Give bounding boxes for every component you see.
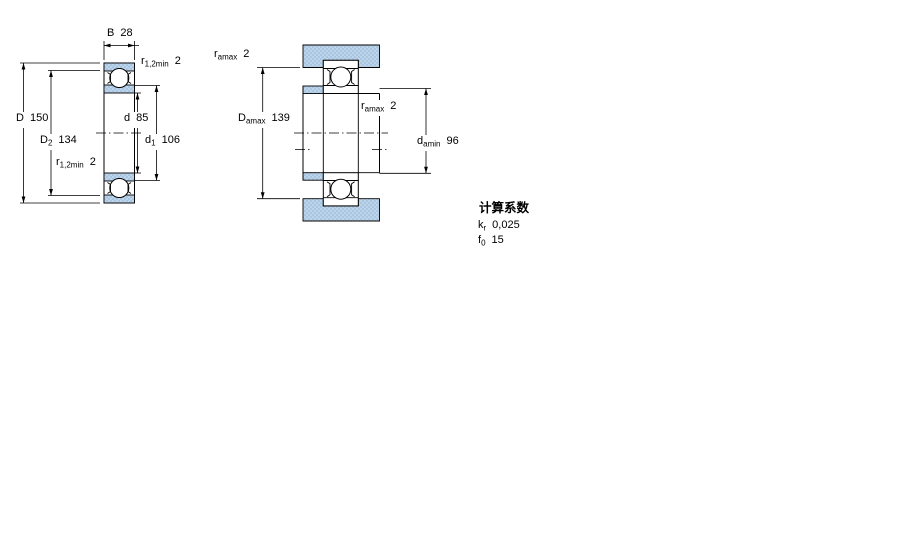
factor-subscript: 0 [481,239,485,248]
dim-subscript: 2 [48,139,52,148]
dim-label-ramax-top: ramax2 [214,48,249,64]
arrow [22,63,26,70]
arrow [261,68,265,75]
dim-subscript: 1,2min [145,60,169,69]
dim-label-B: B28 [107,27,133,43]
dim-value: 2 [90,156,96,168]
arrow [155,174,159,181]
dim-symbol: D [16,112,24,124]
calculation-factors-title: 计算系数 [479,197,529,216]
arrow [22,197,26,204]
ball-bottom [110,179,129,198]
arrow [424,89,428,96]
arrow [49,189,53,196]
dim-subscript: amax [246,117,266,126]
shaft-shoulder-top [303,86,323,94]
arrow [155,86,159,93]
dim-symbol: D [40,134,48,146]
dim-value: 150 [30,112,48,124]
dim-value: 96 [446,135,458,147]
dim-symbol: D [238,112,246,124]
shaft-shoulder-bottom [303,173,323,181]
dim-label-Damax: Damax139 [236,112,292,128]
arrow [424,167,428,174]
dim-label-ramax-mid: ramax2 [359,100,398,116]
ball-bottom [331,179,351,199]
technical-drawing-canvas: B28 r1,2min2 D150 D2134 r1,2min2 d85 d11… [0,0,900,560]
arrow [136,93,140,100]
dim-value: 2 [243,48,249,60]
factor-kr: kr0,025 [478,219,520,235]
bearing-drawing [0,0,900,560]
arrow [261,192,265,199]
dim-subscript: 1,2min [60,161,84,170]
arrow [136,167,140,174]
dim-subscript: amax [365,105,385,114]
dim-subscript: 1 [151,139,155,148]
factor-subscript: r [484,224,487,233]
dim-symbol: d [124,112,130,124]
dim-label-D2: D2134 [38,134,79,150]
dim-value: 85 [136,112,148,124]
dim-subscript: amin [423,140,440,149]
factor-f0: f015 [478,234,504,250]
factor-value: 0,025 [492,219,520,231]
ball-top [110,69,129,88]
arrow [128,44,135,48]
dim-value: 134 [58,134,76,146]
dim-symbol: B [107,27,114,39]
dim-value: 106 [162,134,180,146]
dim-subscript: amax [218,53,238,62]
dim-label-damin: damin96 [415,135,461,151]
right-mounted-figure [294,45,388,221]
dim-label-r12min-top: r1,2min2 [141,55,181,71]
dim-label-r12min-bottom: r1,2min2 [56,156,96,172]
factor-value: 15 [492,234,504,246]
dim-value: 139 [272,112,290,124]
dim-label-d1: d1106 [143,134,182,150]
dim-value: 28 [120,27,132,39]
dim-label-D: D150 [14,112,50,128]
ball-top [331,67,351,87]
left-bearing-figure [96,63,143,203]
dim-value: 2 [175,55,181,67]
arrow [49,71,53,78]
dim-value: 2 [390,100,396,112]
dim-label-d: d85 [122,112,150,128]
arrow [104,44,111,48]
